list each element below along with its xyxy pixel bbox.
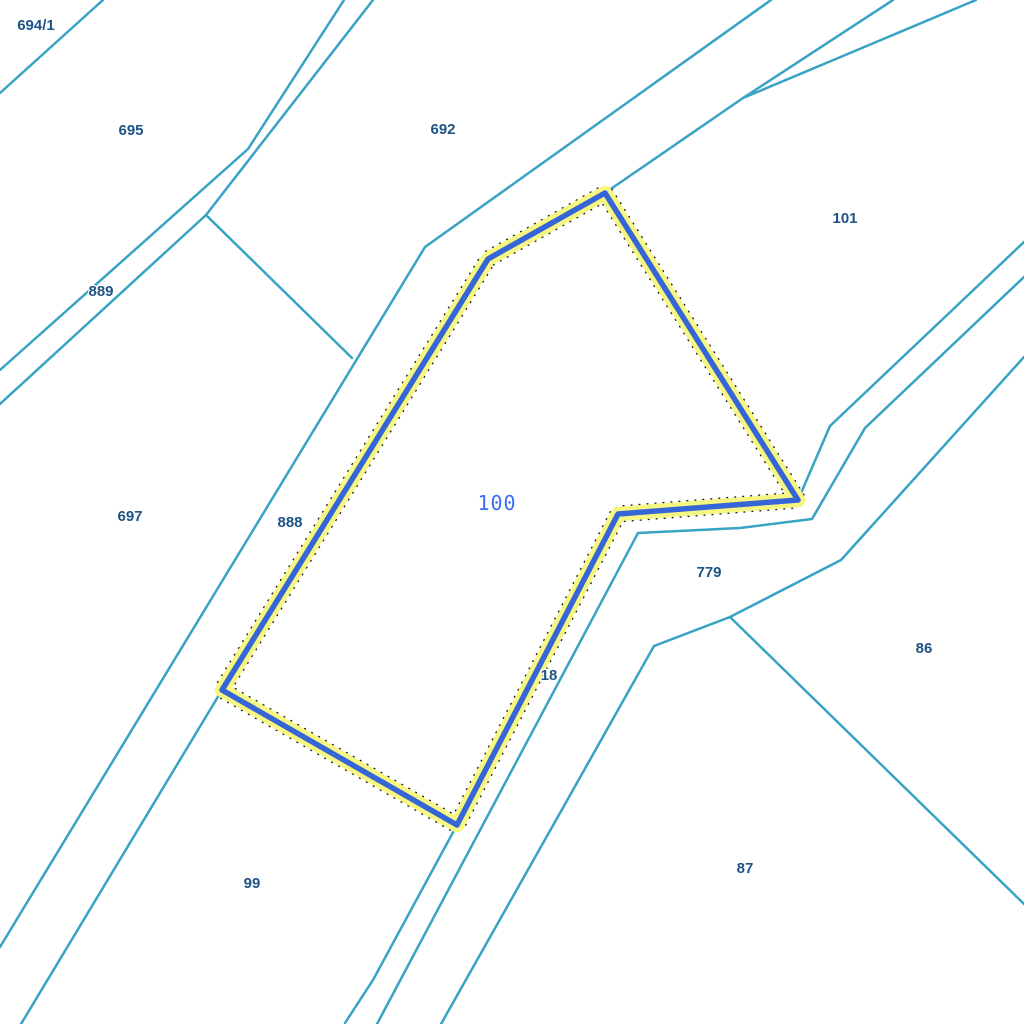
parcel-labels-layer: 694/169569210188969788877986188799100 [17,17,932,892]
cadastral-map-svg: 694/169569210188969788877986188799100 [0,0,1024,1024]
parcel-label-694-1: 694/1 [17,17,55,34]
parcel-label-888: 888 [277,514,302,531]
parcel-label-86: 86 [916,640,933,657]
parcel-label-695: 695 [118,122,143,139]
parcel-label-101: 101 [832,210,857,227]
parcel-boundary-line [743,0,976,98]
parcel-label-87: 87 [737,860,754,877]
parcel-label-18: 18 [541,667,558,684]
parcel-boundary-line [0,0,103,93]
parcel-label-697: 697 [117,508,142,525]
cadastral-map-canvas[interactable]: 694/169569210188969788877986188799100 [0,0,1024,1024]
parcel-label-692: 692 [430,121,455,138]
parcel-boundary-line [0,0,373,404]
selected-parcel-label-100: 100 [477,491,516,515]
parcel-boundary-line [0,0,344,370]
parcel-boundary-line [798,242,1024,500]
parcel-label-889: 889 [88,283,113,300]
parcel-boundary-line [730,617,1024,904]
parcel-boundary-line [345,825,457,1023]
parcel-boundary-line [206,215,352,358]
parcel-boundary-line [21,690,222,1024]
parcel-label-779: 779 [696,564,721,581]
parcel-label-99: 99 [244,875,261,892]
parcel-boundary-line [0,0,771,947]
